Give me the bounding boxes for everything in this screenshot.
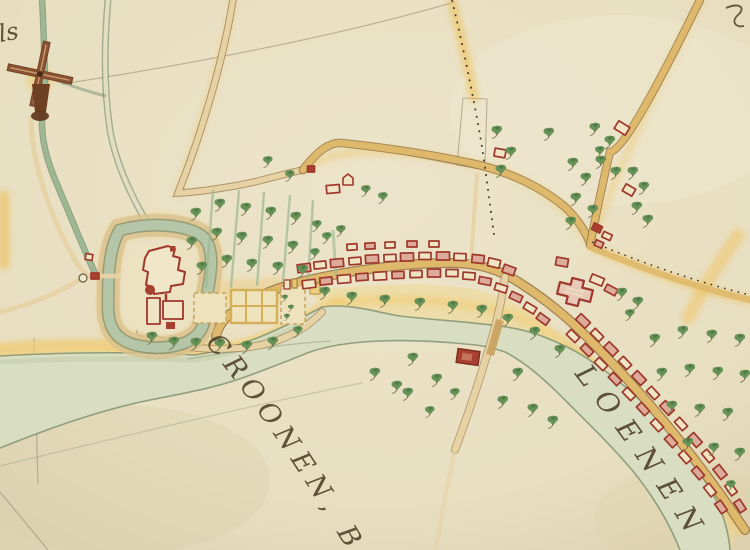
castle-court <box>163 301 183 319</box>
house <box>385 242 395 248</box>
house <box>428 269 441 277</box>
boathouse <box>456 349 480 366</box>
house <box>392 271 404 278</box>
house <box>487 258 500 268</box>
house <box>85 253 93 260</box>
house <box>356 273 368 281</box>
house <box>472 254 485 263</box>
house <box>330 258 344 267</box>
house <box>314 261 327 269</box>
historical-map: CROONEN, BURG LOENEN ls <box>0 0 750 550</box>
house <box>555 257 568 267</box>
house <box>365 255 378 264</box>
house <box>410 270 422 277</box>
windmill-base <box>31 111 49 121</box>
house <box>437 252 450 260</box>
house <box>478 276 491 285</box>
house <box>419 253 431 260</box>
house <box>373 272 386 281</box>
castle-outbuilding <box>147 298 160 324</box>
map-canvas: CROONEN, BURG LOENEN ls <box>0 0 750 550</box>
house <box>349 257 361 265</box>
house <box>308 166 315 172</box>
house <box>326 184 340 193</box>
house <box>429 241 439 247</box>
house <box>320 277 333 285</box>
castle-corner-tower <box>170 246 176 252</box>
house <box>91 273 99 279</box>
house <box>302 279 316 289</box>
garden-house <box>284 280 290 289</box>
house <box>494 148 506 158</box>
house <box>365 243 375 250</box>
castle-round-tower <box>145 285 155 295</box>
garden-parterre <box>231 290 277 323</box>
house <box>454 253 466 260</box>
castle-shed <box>166 322 175 329</box>
house <box>407 241 417 247</box>
house <box>400 253 413 261</box>
house <box>337 274 351 283</box>
garden-house <box>292 279 297 288</box>
house <box>347 244 357 251</box>
house <box>463 272 475 280</box>
garden-plot <box>194 293 226 323</box>
well <box>79 274 87 282</box>
house <box>384 254 396 261</box>
house <box>446 269 458 276</box>
